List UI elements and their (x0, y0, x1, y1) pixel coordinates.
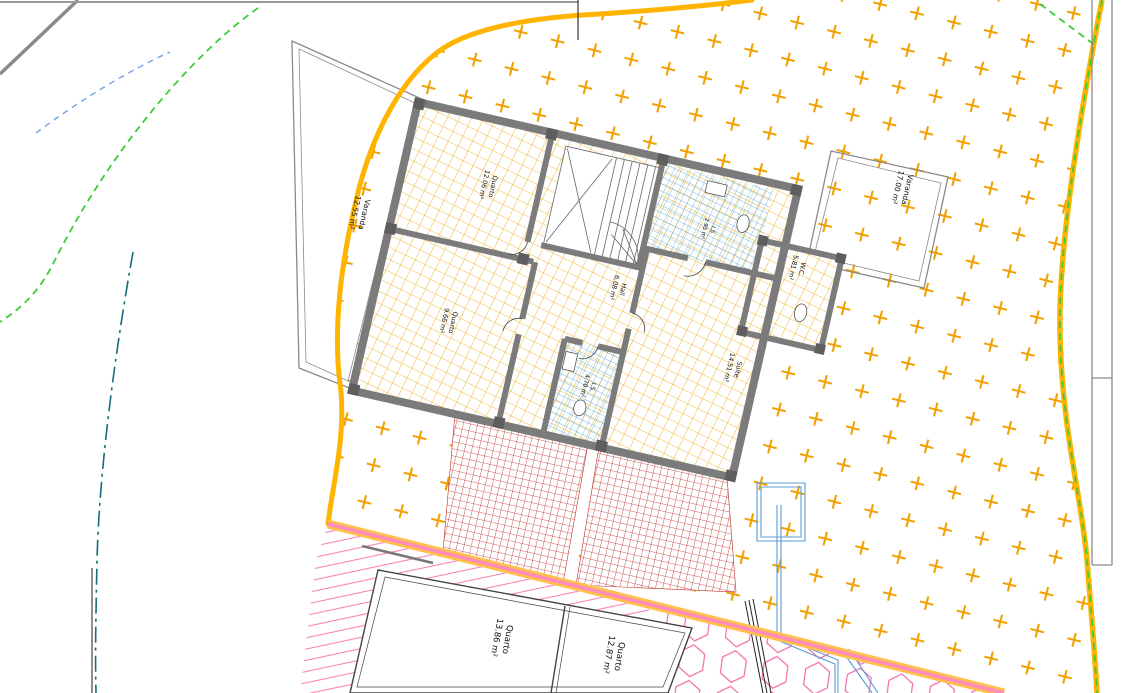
boundary-dashdot-teal (96, 252, 133, 693)
floorplan-canvas[interactable]: Varanda 12.55 m² Quarto 12.06 m² Quarto … (0, 0, 1130, 693)
drawing-page: Varanda 12.55 m² Quarto 12.06 m² Quarto … (0, 0, 1130, 693)
boundary-dashed-blue (36, 52, 170, 133)
right-structure-lines (1092, 0, 1112, 565)
road-edge-gray (0, 0, 78, 74)
